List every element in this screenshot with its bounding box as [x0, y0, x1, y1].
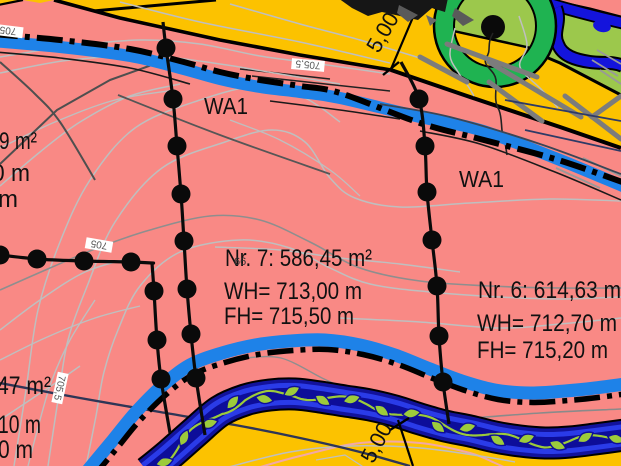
- svg-text:66: 66: [234, 256, 246, 268]
- svg-text:9 m²: 9 m²: [0, 128, 37, 155]
- svg-text:0 m: 0 m: [0, 436, 33, 464]
- svg-text:705,5: 705,5: [295, 57, 321, 70]
- svg-text:FH= 715,20 m: FH= 715,20 m: [477, 337, 608, 364]
- svg-text:705: 705: [0, 23, 17, 36]
- svg-text:m: m: [0, 186, 18, 213]
- svg-text:WH= 713,00 m: WH= 713,00 m: [224, 278, 362, 305]
- svg-text:WA1: WA1: [459, 166, 504, 192]
- svg-text:WA1: WA1: [204, 93, 248, 119]
- svg-text:0 m: 0 m: [0, 160, 30, 187]
- svg-text:Nr. 6: 614,63 m²: Nr. 6: 614,63 m²: [478, 277, 621, 304]
- svg-text:FH= 715,50 m: FH= 715,50 m: [224, 303, 354, 330]
- svg-text:47 m²: 47 m²: [0, 372, 51, 400]
- svg-text:Nr. 7: 586,45 m²: Nr. 7: 586,45 m²: [225, 245, 372, 272]
- svg-text:WH= 712,70 m: WH= 712,70 m: [477, 310, 617, 337]
- svg-text:10 m: 10 m: [0, 411, 41, 439]
